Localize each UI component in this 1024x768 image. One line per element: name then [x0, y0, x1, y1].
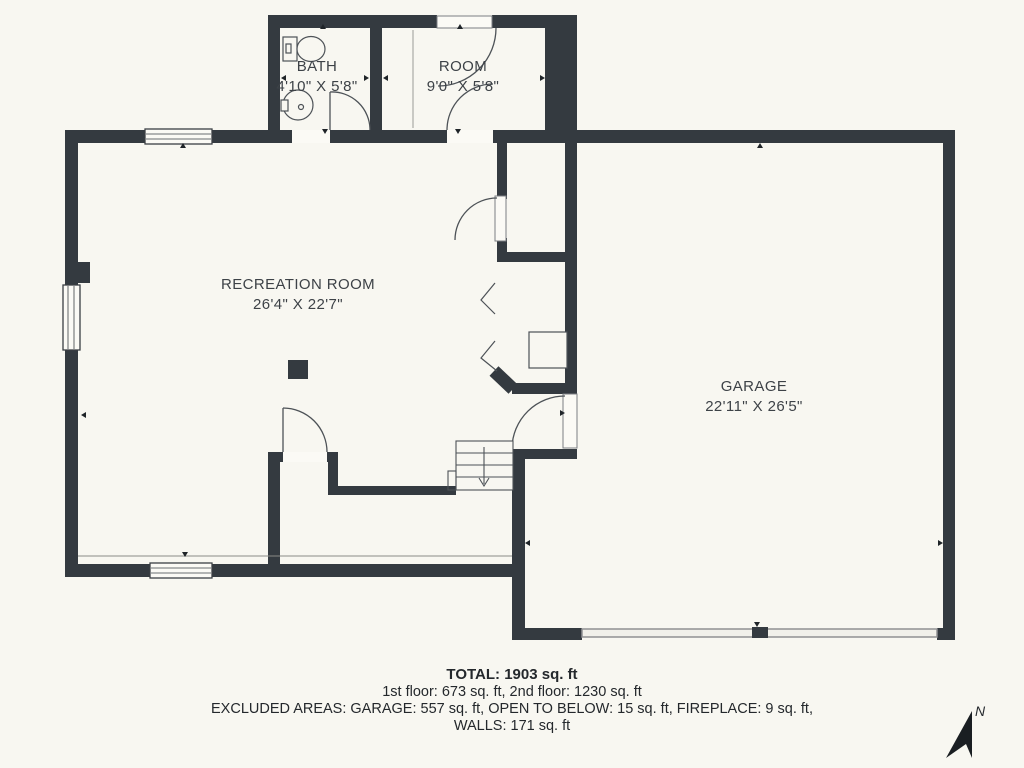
wall-segment	[943, 130, 955, 640]
room-dimensions: 26'4" X 22'7"	[218, 295, 378, 314]
garage-door-icon	[582, 627, 937, 638]
room-label-recreation: RECREATION ROOM 26'4" X 22'7"	[218, 275, 378, 314]
door-leaf	[563, 394, 577, 448]
fireplace-area	[481, 283, 567, 371]
column-icon	[288, 360, 308, 379]
window-icon	[145, 129, 212, 144]
dim-marker	[754, 622, 760, 627]
dim-marker	[525, 540, 530, 546]
stairs-icon	[448, 441, 513, 490]
exterior-walls	[65, 15, 955, 640]
floor-plan-drawing	[0, 0, 1024, 768]
wall-segment	[212, 564, 525, 577]
wall-segment	[512, 383, 565, 394]
door-leaf	[495, 196, 506, 241]
area-summary: TOTAL: 1903 sq. ft 1st floor: 673 sq. ft…	[112, 666, 912, 735]
summary-total: TOTAL: 1903 sq. ft	[112, 666, 912, 684]
wall-segment	[545, 15, 577, 143]
room-label-garage: GARAGE 22'11" X 26'5"	[674, 377, 834, 416]
dim-marker	[81, 412, 86, 418]
wall-segment	[937, 628, 955, 640]
door-opening	[283, 452, 327, 462]
door-swing-icon	[512, 396, 565, 448]
wall-segment	[65, 564, 150, 577]
room-dimensions: 9'0" X 5'8"	[393, 77, 533, 96]
north-arrow-icon	[946, 711, 972, 758]
wall-segment	[328, 486, 456, 495]
window-icon	[150, 563, 212, 578]
wall-segment	[497, 252, 577, 262]
door-swing-icon	[330, 92, 370, 130]
angled-wall-line	[481, 283, 495, 314]
room-dimensions: 22'11" X 26'5"	[674, 397, 834, 416]
garage-door-post	[752, 627, 768, 638]
door-opening	[447, 130, 493, 143]
room-name: GARAGE	[674, 377, 834, 397]
wall-segment	[497, 143, 507, 199]
wall-segment	[512, 457, 525, 640]
chimney-bump	[65, 262, 90, 283]
fireplace-icon	[529, 332, 567, 368]
windows	[63, 129, 212, 578]
floor-plan-page: BATH 4'10" X 5'8" ROOM 9'0" X 5'8" RECRE…	[0, 0, 1024, 768]
room-label-room: ROOM 9'0" X 5'8"	[393, 57, 533, 96]
summary-floors: 1st floor: 673 sq. ft, 2nd floor: 1230 s…	[112, 684, 912, 701]
wall-segment	[330, 130, 447, 143]
room-dimensions: 4'10" X 5'8"	[247, 77, 387, 96]
wall-segment	[512, 449, 577, 459]
door-swing-icon	[283, 408, 327, 452]
dim-marker	[540, 75, 545, 81]
window-icon	[63, 285, 80, 350]
north-label: N	[975, 703, 985, 719]
summary-excluded: EXCLUDED AREAS: GARAGE: 557 sq. ft, OPEN…	[112, 701, 912, 718]
wall-segment	[65, 130, 78, 577]
summary-walls: WALLS: 171 sq. ft	[112, 718, 912, 735]
door-swing-icon	[455, 198, 497, 240]
room-name: ROOM	[393, 57, 533, 77]
dim-marker	[938, 540, 943, 546]
wall-segment	[65, 130, 145, 143]
wall-segment-diagonal	[494, 371, 513, 389]
wall-segment	[268, 452, 280, 564]
room-label-bath: BATH 4'10" X 5'8"	[247, 57, 387, 96]
door-opening	[437, 16, 492, 28]
room-name: BATH	[247, 57, 387, 77]
wall-segment	[268, 15, 437, 28]
dim-marker	[757, 143, 763, 148]
angled-wall-line	[481, 341, 497, 371]
room-name: RECREATION ROOM	[218, 275, 378, 295]
